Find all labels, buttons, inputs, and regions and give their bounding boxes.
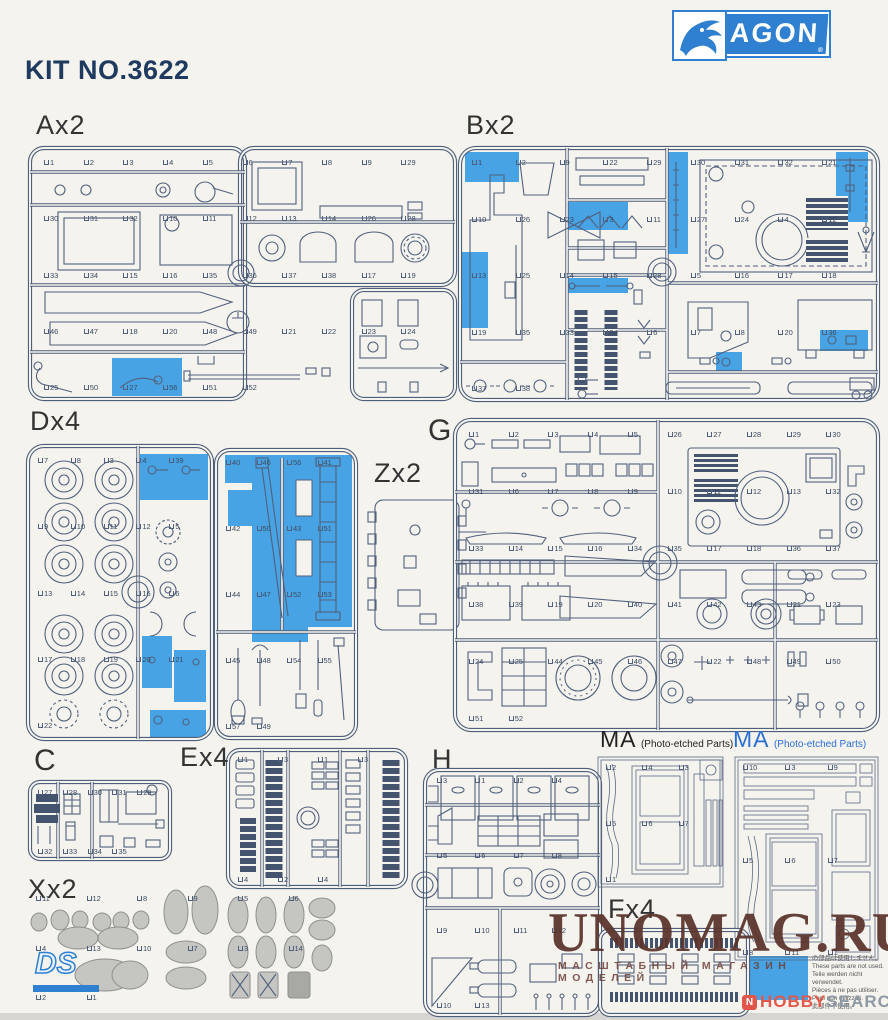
part-number: 22 [38,721,52,730]
part-number: 13 [472,271,486,280]
kit-number: KIT NO.3622 [25,55,190,86]
part-number: 33 [560,328,574,337]
part-number: 34 [84,271,98,280]
part-number: 16 [163,271,177,280]
part-number: 15 [548,544,562,553]
registered-mark: ® [817,47,825,54]
scan-page: KIT NO.3622 DRAGON® Ax2 Bx2 Dx4 Zx2 G C … [0,0,888,1020]
part-number: 33 [44,271,58,280]
part-number: 54 [287,656,301,665]
part-number: 37 [282,271,296,280]
part-number: 4 [238,875,248,884]
part-number: 20 [778,328,792,337]
part-number: 47 [668,657,682,666]
dragon-logo: DRAGON® [672,10,831,58]
part-number: 24 [469,657,483,666]
part-number: 41 [318,458,332,467]
part-number: 5 [628,430,638,439]
part-number: 8 [588,487,598,496]
part-number: 5 [437,851,447,860]
part-number: 14 [71,589,85,598]
part-number: 51 [318,524,332,533]
part-number: 28 [647,271,661,280]
part-number: 49 [243,327,257,336]
part-number: 35 [203,271,217,280]
part-number: 36 [243,271,257,280]
part-number: 46 [257,458,271,467]
part-number: 21 [787,600,801,609]
part-number: 16 [735,271,749,280]
part-number: 10 [472,215,486,224]
part-number: 5 [203,158,213,167]
part-number: 4 [36,944,46,953]
part-number: 32 [123,214,137,223]
part-number: 42 [226,524,240,533]
part-number: 17 [38,655,52,664]
watermark-title: UNOMAG.RU [548,901,888,965]
part-number: 10 [743,763,757,772]
part-number: 16 [588,544,602,553]
part-number: 10 [437,1001,451,1010]
part-number: 43 [287,524,301,533]
part-number: 7 [38,456,48,465]
part-number: 21 [282,327,296,336]
part-number: 7 [828,856,838,865]
part-number: 12 [747,487,761,496]
part-number: 40 [628,600,642,609]
part-number: 3 [238,944,248,953]
part-number: 3 [548,430,558,439]
part-number: 25 [509,657,523,666]
part-number: 25 [516,271,530,280]
sprue-g-art [455,420,878,730]
part-number: 38 [516,384,530,393]
part-number: 15 [123,271,137,280]
part-number: 9 [828,763,838,772]
part-number: 6 [642,819,652,828]
part-number: 20 [163,327,177,336]
part-number: 28 [401,214,415,223]
ds-logo: DS [35,950,77,978]
part-number: 3 [437,776,447,785]
part-number: 11 [36,894,50,903]
part-number: 15 [603,271,617,280]
part-number: 30 [691,158,705,167]
part-number: 28 [747,430,761,439]
part-number: 48 [257,656,271,665]
sprue-label-d: Dx4 [30,406,81,437]
part-number: 35 [516,328,530,337]
sprue-label-g: G [428,414,452,448]
part-number: 26 [362,214,376,223]
part-number: 27 [123,383,137,392]
part-number: 29 [137,788,151,797]
part-number: 6 [243,158,253,167]
part-number: 49 [787,657,801,666]
part-number: 27 [38,788,52,797]
part-number: 13 [787,487,801,496]
part-number: 3 [123,158,133,167]
part-number: 34 [628,544,642,553]
part-number: 7 [679,819,689,828]
part-number: 18 [747,544,761,553]
part-number: 19 [104,655,118,664]
part-number: 9 [628,487,638,496]
part-number: 14 [509,544,523,553]
part-number: 35 [112,847,126,856]
part-number: 18 [822,271,836,280]
part-number: 2 [606,763,616,772]
part-number: 4 [588,430,598,439]
part-number: 2 [509,430,519,439]
part-number: 30 [88,788,102,797]
part-number: 31 [735,158,749,167]
part-number: 36 [822,328,836,337]
part-number: 37 [472,384,486,393]
part-number: 8 [552,851,562,860]
part-number: 4 [136,456,146,465]
part-number: 7 [514,851,524,860]
part-number: 45 [588,657,602,666]
part-number: 6 [169,589,179,598]
part-number: 11 [707,487,721,496]
part-number: 14 [322,214,336,223]
part-number: 3 [603,215,613,224]
part-number: 31 [469,487,483,496]
part-number: 2 [84,158,94,167]
part-number: 1 [475,776,485,785]
part-number: 17 [778,271,792,280]
watermark-subtitle: МАСШТАБНЫЙ МАГАЗИН МОДЕЛЕЙ [558,960,888,984]
part-number: 10 [668,487,682,496]
part-number: 7 [691,328,701,337]
part-number: 20 [588,600,602,609]
part-number: 10 [137,944,151,953]
part-number: 9 [38,522,48,531]
part-number: 1 [238,755,248,764]
ma-black-label: MA (Photo-etched Parts) [600,726,733,753]
part-number: 22 [322,327,336,336]
ma-blue-label: MA (Photo-etched Parts) [733,726,866,753]
part-number: 50 [826,657,840,666]
part-number: 19 [472,328,486,337]
sprue-label-c: C [34,744,57,778]
part-number: 45 [226,656,240,665]
part-number: 11 [104,522,118,531]
part-number: 22 [603,158,617,167]
part-number: 13 [282,214,296,223]
part-number: 48 [747,657,761,666]
part-number: 24 [401,327,415,336]
part-number: 26 [516,215,530,224]
part-number: 51 [469,714,483,723]
part-number: 12 [822,215,836,224]
part-number: 52 [243,383,257,392]
part-number: 19 [548,600,562,609]
part-number: 11 [647,215,661,224]
part-number: 41 [668,600,682,609]
part-number: 24 [735,215,749,224]
part-number: 43 [747,600,761,609]
part-number: 6 [785,856,795,865]
part-number: 8 [322,158,332,167]
part-number: 30 [44,214,58,223]
road-wheels [45,461,133,728]
part-number: 5 [606,819,616,828]
part-number: 2 [278,875,288,884]
part-number: 32 [778,158,792,167]
part-number: 50 [257,524,271,533]
part-number: 13 [87,944,101,953]
part-number: 31 [84,214,98,223]
part-number: 1 [44,158,54,167]
part-number: 8 [71,456,81,465]
part-number: 3 [785,763,795,772]
part-number: 46 [628,657,642,666]
part-number: 9 [560,158,570,167]
part-number: 42 [707,600,721,609]
part-number: 13 [475,1001,489,1010]
part-number: 22 [707,657,721,666]
part-number: 47 [257,590,271,599]
part-number: 18 [123,327,137,336]
part-number: 4 [318,875,328,884]
part-number: 11 [203,214,217,223]
part-number: 3 [358,755,368,764]
part-number: 14 [289,944,303,953]
unused-part-highlights [112,152,868,1000]
part-number: 1 [87,993,97,1002]
part-number: 3 [104,456,114,465]
part-number: 12 [87,894,101,903]
part-number: 12 [136,522,150,531]
part-number: 16 [136,589,150,598]
part-number: 6 [475,851,485,860]
part-number: 9 [437,926,447,935]
ma-black-fret-art [598,757,723,887]
part-number: 27 [707,430,721,439]
sprue-label-e: Ex4 [180,742,230,773]
part-number: 17 [362,271,376,280]
part-number: 7 [282,158,292,167]
part-number: 28 [63,788,77,797]
part-number: 10 [163,214,177,223]
part-number: 15 [104,589,118,598]
part-number: 21 [169,655,183,664]
part-number: 1 [472,158,482,167]
part-number: 27 [691,215,705,224]
part-number: 6 [647,328,657,337]
part-number: 10 [71,522,85,531]
part-number: 12 [243,214,257,223]
dragon-emblem-icon [672,10,727,61]
part-number: 4 [163,158,173,167]
part-number: 55 [318,656,332,665]
part-number: 35 [668,544,682,553]
part-number: 52 [287,590,301,599]
sprue-label-z: Zx2 [374,458,422,489]
part-number: 32 [826,487,840,496]
part-number: 7 [548,487,558,496]
part-number: 9 [188,894,198,903]
part-number: 36 [787,544,801,553]
part-number: 56 [287,458,301,467]
part-number: 3 [278,755,288,764]
part-number: 33 [469,544,483,553]
part-number: 13 [38,589,52,598]
part-number: 19 [401,271,415,280]
part-number: 2 [514,776,524,785]
part-number: 37 [826,544,840,553]
part-number: 38 [322,271,336,280]
part-number: 34 [603,328,617,337]
part-number: 44 [226,590,240,599]
part-number: 3 [679,763,689,772]
part-number: 2 [516,158,526,167]
part-number: 23 [560,215,574,224]
part-number: 47 [84,327,98,336]
part-number: 48 [203,327,217,336]
part-number: 9 [362,158,372,167]
sprue-z-art [368,500,466,630]
part-number: 25 [44,383,58,392]
part-number: 39 [169,456,183,465]
part-number: 56 [163,383,177,392]
part-number: 5 [691,271,701,280]
part-number: 32 [38,847,52,856]
sprue-label-h: H [432,744,453,775]
part-number: 5 [238,894,248,903]
part-number: 5 [169,522,179,531]
part-number: 4 [642,763,652,772]
part-number: 11 [514,926,528,935]
part-number: 30 [826,430,840,439]
part-number: 31 [112,788,126,797]
part-number: 10 [475,926,489,935]
part-number: 38 [469,600,483,609]
part-number: 8 [735,328,745,337]
part-number: 17 [707,544,721,553]
part-number: 44 [548,657,562,666]
part-number: 6 [509,487,519,496]
sprue-e-art [228,750,406,887]
part-number: 1 [606,875,616,884]
part-number: 57 [226,722,240,731]
part-number: 46 [44,327,58,336]
part-number: 49 [257,722,271,731]
part-number: 14 [560,271,574,280]
part-number: 52 [509,714,523,723]
part-number: 39 [509,600,523,609]
part-number: 23 [362,327,376,336]
part-number: 7 [188,944,198,953]
part-number: 50 [84,383,98,392]
part-number: 53 [318,590,332,599]
part-number: 8 [137,894,147,903]
part-number: 23 [826,600,840,609]
part-number: 1 [469,430,479,439]
part-number: 20 [136,655,150,664]
part-number: 29 [647,158,661,167]
part-number: 6 [289,894,299,903]
part-number: 40 [226,458,240,467]
part-number: 26 [668,430,682,439]
sprue-label-b: Bx2 [466,110,516,141]
part-number: 4 [778,215,788,224]
part-number: 33 [63,847,77,856]
hobbysearch-logo: N HOBBY SEARCH [742,992,888,1012]
part-number: 21 [822,158,836,167]
ds-logo-bar [33,985,99,992]
part-number: 1 [318,755,328,764]
part-number: 4 [552,776,562,785]
part-number: 29 [401,158,415,167]
sprue-label-a: Ax2 [36,110,86,141]
hobbysearch-icon: N [742,995,757,1010]
part-number: 34 [88,847,102,856]
part-number: 18 [71,655,85,664]
sprue-line-art [0,0,888,1020]
part-number: 29 [787,430,801,439]
part-number: 2 [36,993,46,1002]
part-number: 51 [203,383,217,392]
part-number: 5 [743,856,753,865]
